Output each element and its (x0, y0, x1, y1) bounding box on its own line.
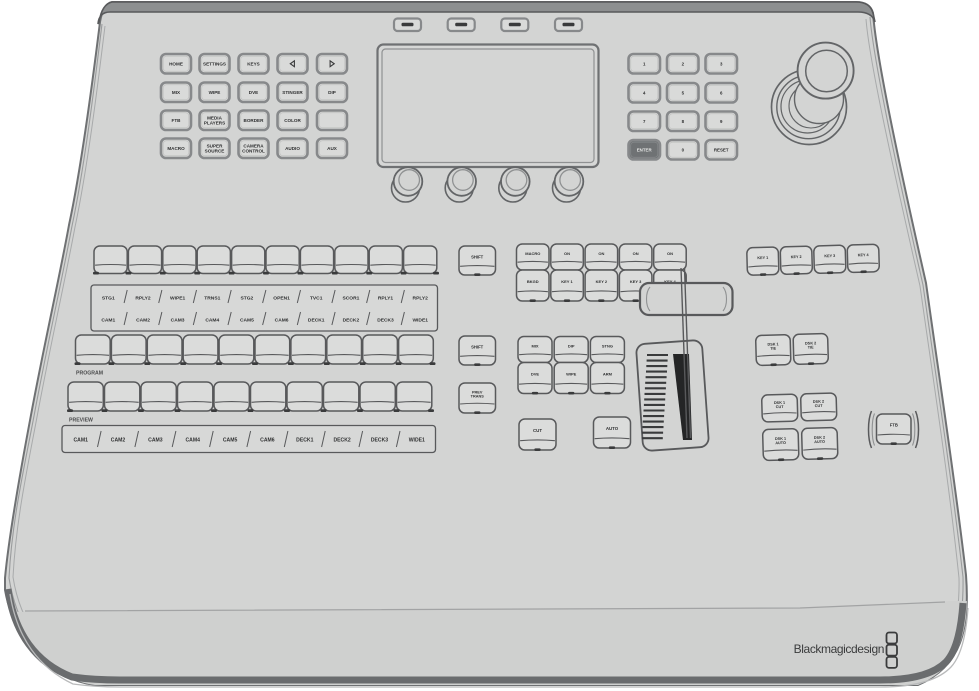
svg-text:ENTER: ENTER (637, 147, 653, 152)
svg-text:KEY 1: KEY 1 (757, 256, 768, 260)
svg-text:KEY 3: KEY 3 (824, 254, 835, 258)
svg-text:FTB: FTB (890, 423, 898, 428)
svg-text:CAM3: CAM3 (171, 318, 185, 324)
svg-text:KEY 2: KEY 2 (791, 255, 802, 259)
svg-text:CAM1: CAM1 (73, 438, 88, 444)
svg-text:CUT: CUT (815, 404, 824, 408)
svg-text:TRNS1: TRNS1 (204, 296, 220, 302)
svg-text:RPLY2: RPLY2 (135, 296, 151, 302)
svg-text:WIPE1: WIPE1 (170, 296, 185, 302)
svg-text:FTB: FTB (172, 118, 182, 123)
svg-text:ON: ON (564, 251, 570, 256)
svg-text:CAM6: CAM6 (275, 318, 289, 324)
svg-text:CAM3: CAM3 (148, 438, 163, 444)
svg-text:DIP: DIP (328, 90, 336, 95)
svg-text:CAM1: CAM1 (101, 318, 115, 324)
svg-text:KEY 1: KEY 1 (561, 279, 573, 284)
svg-text:CAM4: CAM4 (185, 438, 200, 444)
svg-text:COLOR: COLOR (284, 118, 301, 123)
svg-text:TRANS: TRANS (471, 395, 485, 399)
svg-text:TIE: TIE (770, 347, 776, 351)
svg-text:KEY 2: KEY 2 (596, 279, 608, 284)
svg-text:AUTO: AUTO (775, 441, 786, 445)
svg-text:CAM4: CAM4 (205, 318, 219, 324)
svg-text:WIPE: WIPE (566, 372, 577, 377)
svg-text:RESET: RESET (714, 147, 729, 152)
svg-text:AUX: AUX (327, 146, 338, 151)
svg-text:CAM2: CAM2 (136, 318, 150, 324)
svg-text:DECK2: DECK2 (343, 318, 360, 324)
svg-text:STINGER: STINGER (282, 90, 303, 95)
svg-text:KEY 4: KEY 4 (858, 253, 870, 257)
svg-text:MIX: MIX (172, 90, 181, 95)
svg-text:DIP: DIP (568, 344, 575, 349)
svg-text:SHIFT: SHIFT (471, 344, 484, 349)
svg-text:DECK1: DECK1 (308, 318, 325, 324)
svg-text:AUDIO: AUDIO (285, 146, 300, 151)
svg-text:STG1: STG1 (102, 296, 115, 302)
svg-text:DECK1: DECK1 (296, 438, 313, 444)
svg-text:SHIFT: SHIFT (471, 254, 484, 259)
svg-text:CONTROL: CONTROL (242, 149, 265, 154)
svg-text:BKGD: BKGD (527, 279, 539, 284)
svg-text:WIDE1: WIDE1 (409, 438, 425, 444)
svg-text:SCOR1: SCOR1 (342, 296, 359, 302)
svg-text:PLAYERS: PLAYERS (204, 121, 225, 126)
svg-text:ARM: ARM (603, 372, 613, 377)
svg-text:WIDE1: WIDE1 (412, 318, 428, 324)
svg-text:ON: ON (633, 251, 639, 256)
svg-text:DECK3: DECK3 (371, 438, 388, 444)
svg-text:ON: ON (667, 251, 673, 256)
svg-text:DECK2: DECK2 (333, 438, 350, 444)
svg-text:CAM5: CAM5 (240, 318, 254, 324)
svg-text:CUT: CUT (533, 428, 542, 433)
svg-text:RPLY1: RPLY1 (378, 296, 394, 302)
svg-text:MACRO: MACRO (525, 251, 540, 256)
svg-text:PREVIEW: PREVIEW (69, 418, 93, 424)
svg-text:MACRO: MACRO (167, 146, 185, 151)
svg-text:DVE: DVE (531, 372, 540, 377)
svg-text:TVC1: TVC1 (310, 296, 323, 302)
svg-text:DVE: DVE (249, 90, 258, 95)
svg-text:KEYS: KEYS (247, 62, 260, 67)
svg-text:MIX: MIX (531, 344, 538, 349)
svg-text:WIPE: WIPE (209, 90, 221, 95)
svg-text:TIE: TIE (808, 345, 814, 349)
svg-text:OPEN1: OPEN1 (273, 296, 290, 302)
svg-text:CAM6: CAM6 (260, 438, 275, 444)
svg-text:STNG: STNG (602, 344, 613, 349)
svg-text:SETTINGS: SETTINGS (203, 62, 226, 67)
svg-text:KEY 3: KEY 3 (630, 279, 642, 284)
svg-text:PROGRAM: PROGRAM (76, 371, 103, 377)
svg-text:ON: ON (598, 251, 604, 256)
svg-text:Blackmagicdesign: Blackmagicdesign (794, 642, 884, 656)
svg-text:RPLY2: RPLY2 (413, 296, 429, 302)
svg-text:DECK3: DECK3 (377, 318, 394, 324)
svg-text:HOME: HOME (169, 62, 183, 67)
svg-text:BORDER: BORDER (244, 118, 265, 123)
svg-text:AUTO: AUTO (814, 440, 825, 444)
svg-text:CAM5: CAM5 (223, 438, 238, 444)
svg-text:CAM2: CAM2 (111, 438, 126, 444)
svg-text:CUT: CUT (776, 405, 785, 409)
svg-text:AUTO: AUTO (606, 426, 619, 431)
svg-text:SOURCE: SOURCE (205, 149, 225, 154)
svg-text:STG2: STG2 (241, 296, 254, 302)
